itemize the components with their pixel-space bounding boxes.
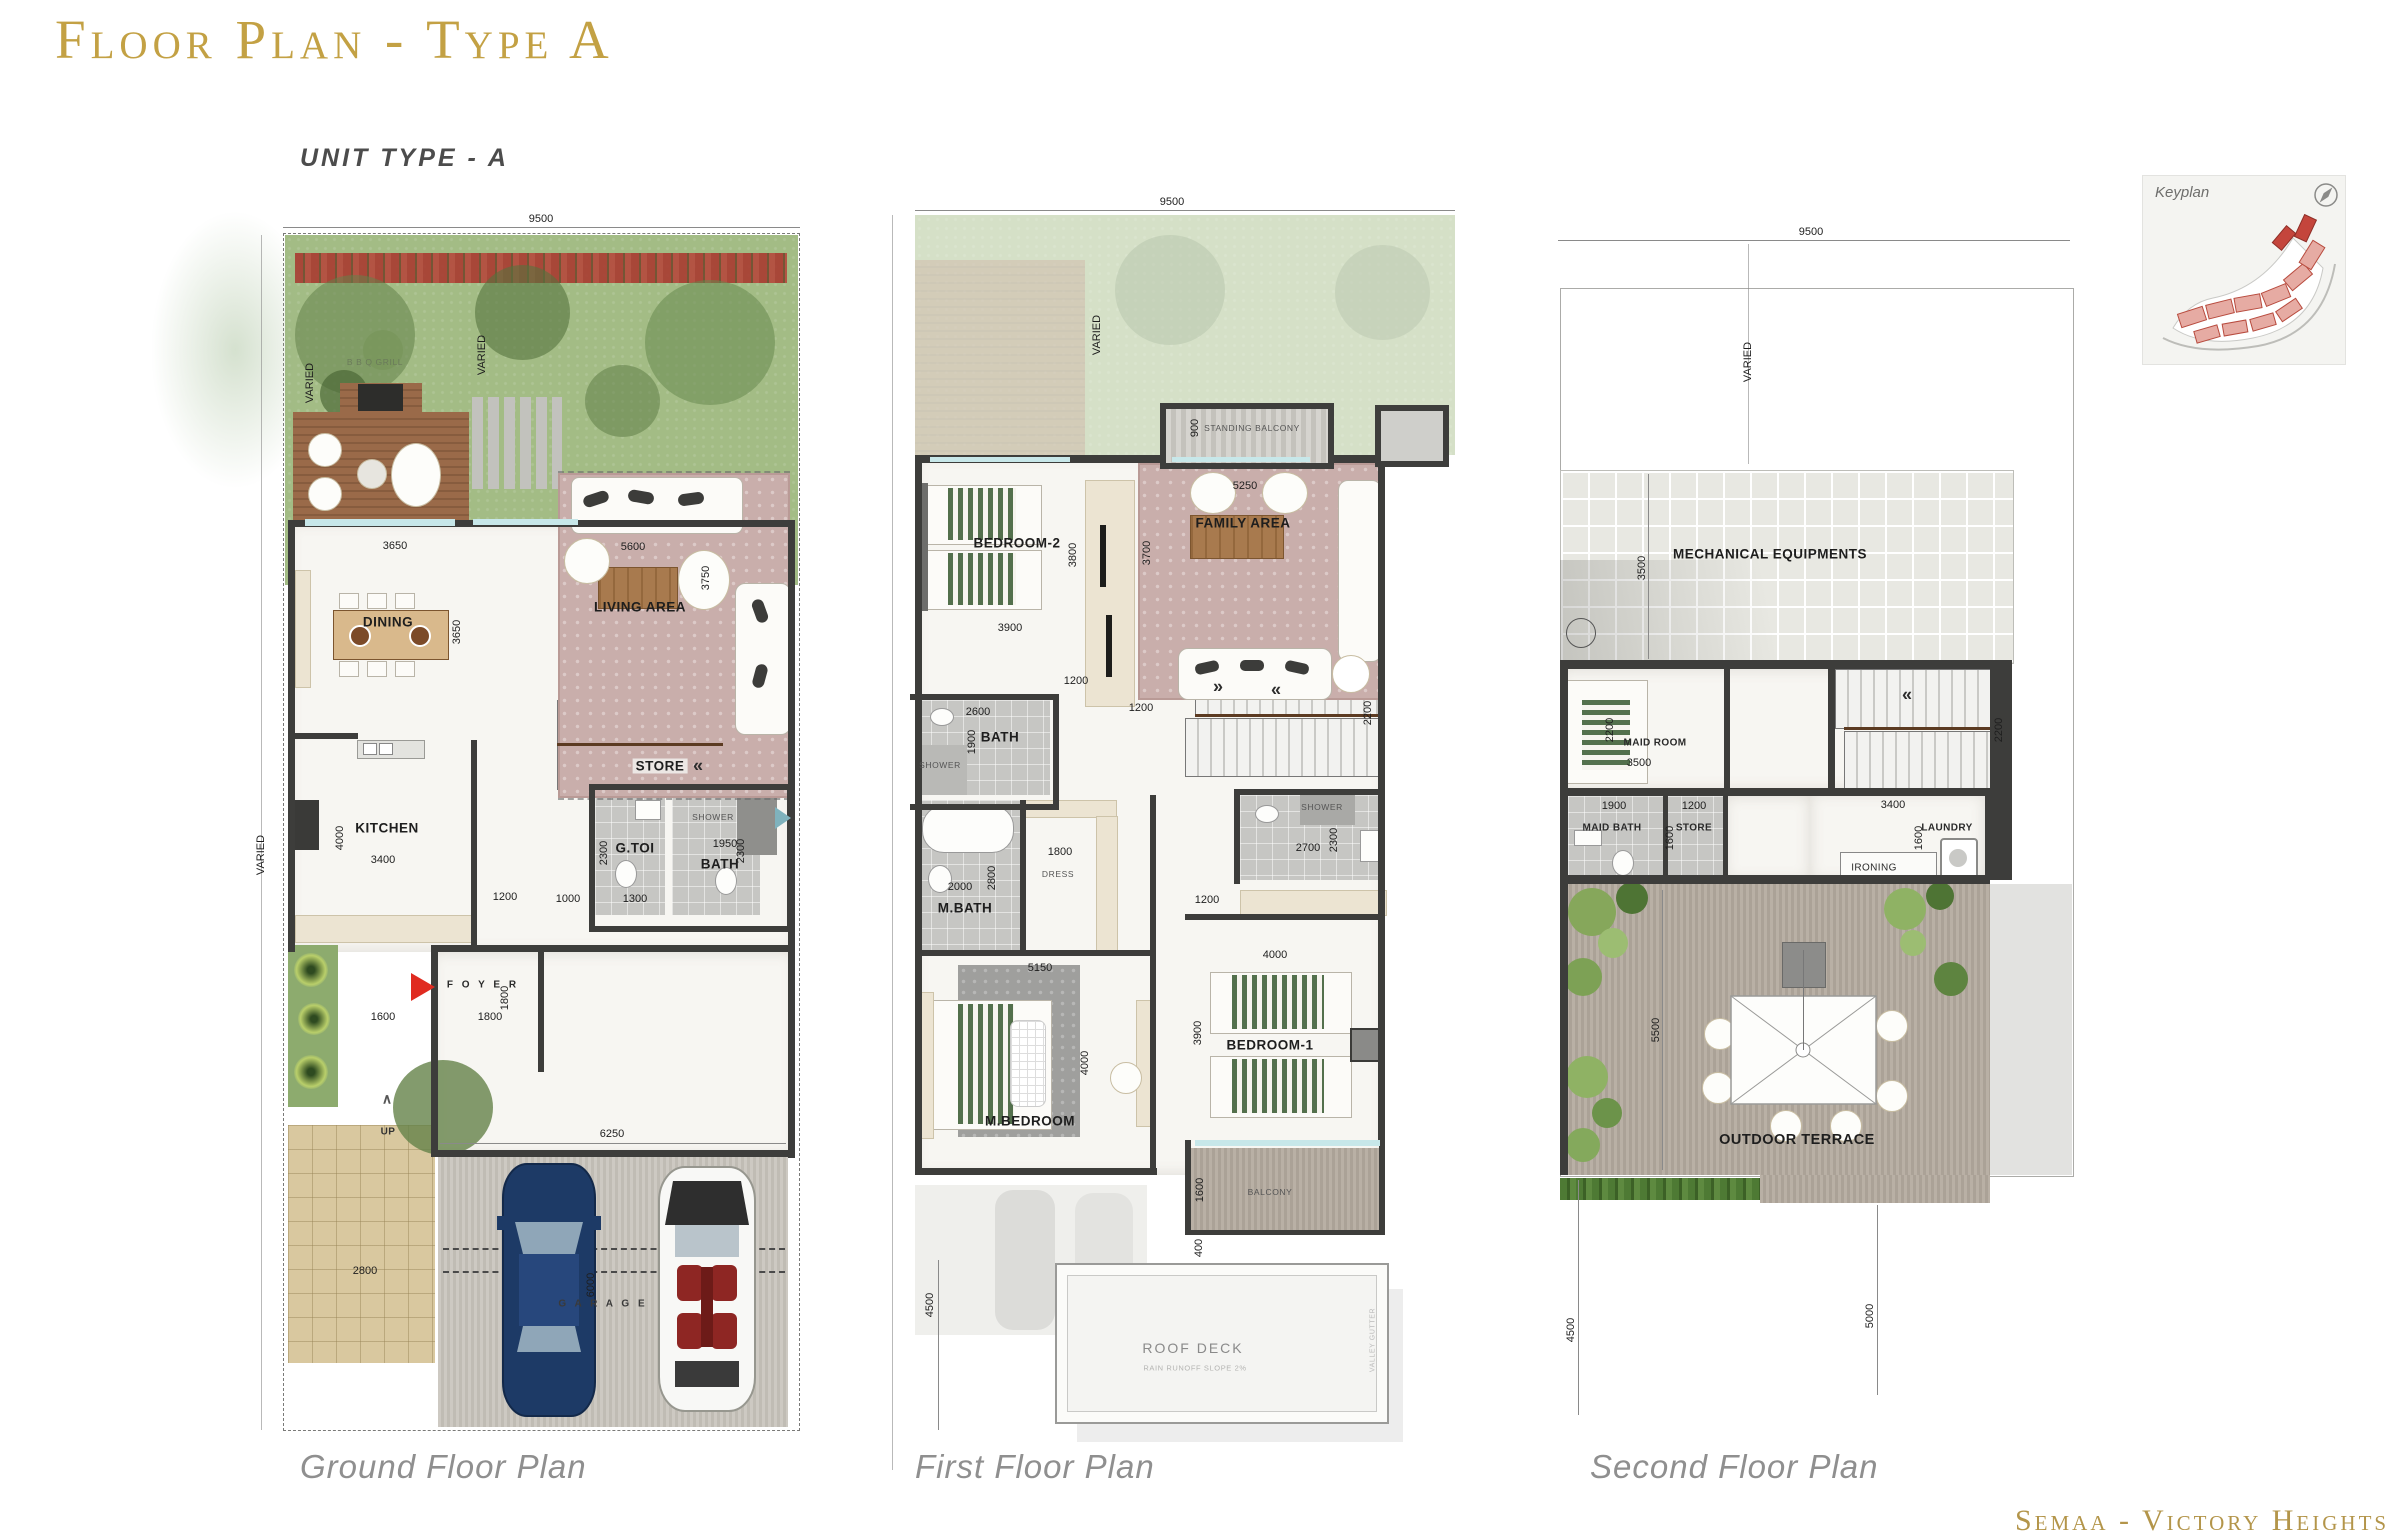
decorative-shape — [675, 1225, 739, 1257]
dim-garden-varied: VARIED — [304, 363, 316, 403]
deck-chair — [308, 477, 342, 511]
dim-side: 4500 — [924, 1293, 936, 1317]
terrace-chair — [1876, 1080, 1908, 1112]
decorative-shape — [517, 1326, 581, 1352]
terrace-label: OUTDOOR TERRACE — [1719, 1132, 1875, 1148]
dim-living-w: 5600 — [621, 541, 645, 553]
dim-line — [283, 227, 800, 228]
laundry-label: LAUNDRY — [1921, 823, 1972, 834]
garage-label: G A R A G E — [558, 1299, 647, 1310]
plant — [1616, 882, 1648, 914]
up-chevron-icon: ∧ — [382, 1091, 392, 1108]
unit-type-label: UNIT TYPE - A — [300, 144, 509, 173]
armchair — [564, 538, 610, 584]
tv-panel — [1100, 525, 1106, 587]
wall-outline — [589, 784, 793, 932]
bed-blanket — [948, 553, 1016, 605]
dim-stair-h: 2200 — [1993, 718, 2005, 742]
dim-sh-w: 2700 — [1296, 842, 1320, 854]
dim-varied-left: VARIED — [255, 835, 267, 875]
up-label: UP — [381, 1127, 396, 1138]
dim-line — [1648, 474, 1649, 659]
ground-floor-plan: 9500 VARIED VARIED VARIED B B Q GRILL 56… — [283, 215, 800, 1447]
plant — [1598, 928, 1628, 958]
dim-line — [892, 215, 893, 1470]
decorative-shape — [2173, 238, 2323, 341]
dining-chair — [339, 593, 359, 609]
shower-label: SHOWER — [919, 760, 961, 770]
decorative-shape — [1949, 849, 1967, 867]
bedroom2-label: BEDROOM-2 — [973, 536, 1060, 551]
terrace-chair — [1876, 1010, 1908, 1042]
mbedroom-label: M.BEDROOM — [985, 1114, 1075, 1129]
shadow — [1560, 560, 1880, 662]
decorative-shape — [711, 1265, 737, 1301]
rug-fringe — [558, 471, 790, 473]
courtyard-tree — [393, 1060, 493, 1155]
dim-family-h: 3700 — [1141, 541, 1153, 565]
deck-below — [915, 260, 1085, 455]
gtoi-label: G.TOI — [615, 841, 654, 856]
fan-chair — [1190, 472, 1236, 514]
wall — [1724, 669, 1730, 790]
dim-drive-w: 2800 — [353, 1265, 377, 1277]
stair-rail — [557, 743, 723, 746]
dim-sh-h: 2300 — [1328, 828, 1340, 852]
wardrobe-dark — [1350, 1028, 1380, 1062]
terrace-ext — [1760, 1175, 1990, 1203]
dim-terrace-h: 5500 — [1650, 1018, 1662, 1042]
dim-lot-width: 9500 — [1799, 226, 1823, 238]
dim-living-h: 3750 — [700, 566, 712, 590]
ironing-label: IRONING — [1851, 863, 1897, 874]
dim-balc-h: 1600 — [1194, 1178, 1206, 1202]
decorative-shape — [497, 1216, 505, 1230]
staircase — [1835, 669, 1992, 729]
wall — [1723, 796, 1728, 880]
standing-balcony-label: STANDING BALCONY — [1204, 423, 1300, 433]
staircase — [1844, 731, 1992, 792]
dim-garage-w: 6250 — [600, 1128, 624, 1140]
decorative-shape — [665, 1181, 749, 1225]
dim-line — [915, 210, 1455, 211]
store-label: STORE — [1676, 823, 1712, 834]
wall — [1185, 1230, 1385, 1235]
tree — [1115, 235, 1225, 345]
dim-line — [938, 1260, 939, 1430]
deck-chair — [308, 433, 342, 467]
door-marker — [775, 807, 791, 829]
dim-side-a: 4500 — [1565, 1318, 1577, 1342]
wall — [1020, 800, 1026, 950]
dim-varied: VARIED — [1742, 342, 1754, 382]
maid-label: MAID ROOM — [1623, 738, 1686, 749]
tree — [645, 280, 775, 405]
mech-label: MECHANICAL EQUIPMENTS — [1673, 547, 1867, 562]
dim-foyer-w: 1800 — [478, 1011, 502, 1023]
deck-lounge — [391, 443, 441, 507]
chaise — [1338, 480, 1382, 662]
deck-table — [357, 459, 387, 489]
second-caption: Second Floor Plan — [1590, 1448, 1879, 1486]
bedroom1-label: BEDROOM-1 — [1226, 1038, 1313, 1053]
window — [1195, 1140, 1380, 1146]
dim-hall-b: 1000 — [556, 893, 580, 905]
decorative-shape — [677, 1265, 703, 1301]
wall — [915, 950, 1155, 956]
kitchen-sink — [363, 743, 377, 755]
dim-family-w: 5250 — [1233, 480, 1257, 492]
kitchen-sink — [379, 743, 393, 755]
grill-table — [1782, 942, 1826, 988]
decorative-shape — [701, 1267, 713, 1347]
bed-blanket — [1232, 975, 1324, 1029]
dim-maid-w: 3500 — [1627, 757, 1651, 769]
keyplan: Keyplan — [2143, 176, 2345, 364]
stair-rail — [1195, 714, 1383, 717]
dim-gtoi-w: 1300 — [623, 893, 647, 905]
plant — [1592, 1098, 1622, 1128]
wall — [1560, 660, 2012, 669]
dim-bath-h: 2300 — [735, 839, 747, 863]
bed-blanket — [1232, 1059, 1324, 1113]
dim-maidbath-w: 1900 — [1602, 800, 1626, 812]
dim-bath-w: 2600 — [966, 706, 990, 718]
wall — [1234, 789, 1240, 884]
kitchen-label: KITCHEN — [355, 821, 419, 836]
floorplan-sheet: { "page": { "title": "Floor Plan - Type … — [0, 0, 2400, 1530]
wall — [1150, 795, 1156, 1175]
dim-hall-c: 1200 — [1195, 894, 1219, 906]
second-floor-plan: 9500 VARIED MECHANICAL EQUIPMENTS 3500 M… — [1552, 230, 2097, 1445]
dim-bath-h: 1900 — [966, 730, 978, 754]
decorative-shape — [711, 1313, 737, 1349]
pergola-post — [1803, 950, 1804, 1050]
dim-hall-b: 1200 — [1129, 702, 1153, 714]
store-label: STORE — [633, 759, 688, 774]
page-title: Floor Plan - Type A — [55, 8, 614, 71]
wall — [538, 952, 544, 1072]
toilet — [1612, 850, 1634, 876]
washbasin — [1360, 830, 1380, 862]
plant — [1566, 1128, 1600, 1162]
tv-panel — [1106, 615, 1112, 677]
dim-maid-h: 2200 — [1604, 718, 1616, 742]
wall — [1379, 1140, 1385, 1235]
dim-line — [440, 1143, 786, 1144]
dim-line — [1877, 1205, 1878, 1395]
dim-line — [261, 235, 262, 1430]
wall — [1560, 660, 1568, 1175]
dim-dress-w: 1800 — [1048, 846, 1072, 858]
dim-store-h: 1600 — [1664, 826, 1676, 850]
decorative-shape — [515, 1222, 583, 1254]
wall — [1234, 789, 1385, 795]
side-block — [1375, 405, 1449, 467]
chair-outline — [1566, 618, 1596, 648]
entry-arrow-icon — [411, 973, 435, 1001]
dining-chair — [339, 661, 359, 677]
dining-chair — [367, 661, 387, 677]
dim-varied: VARIED — [1091, 315, 1103, 355]
dim-mbath-h: 2800 — [986, 866, 998, 890]
stair-direction-icon: » — [1213, 677, 1223, 698]
wall — [1378, 455, 1385, 1145]
wall — [471, 740, 477, 952]
wall — [915, 455, 922, 1175]
desk-chair — [1110, 1062, 1142, 1094]
dim-bed2-w: 3900 — [998, 622, 1022, 634]
window — [305, 519, 455, 526]
dim-mech-h: 3500 — [1636, 556, 1648, 580]
dining-chair — [395, 593, 415, 609]
dim-store-w: 1200 — [1682, 800, 1706, 812]
fan-chair — [1262, 472, 1308, 514]
dim-bed1-h: 3900 — [1192, 1021, 1204, 1045]
flat-roof — [1990, 884, 2072, 1175]
dim-court-w: 1600 — [371, 1011, 395, 1023]
fridge — [293, 800, 319, 850]
dim-line — [1662, 890, 1663, 1170]
plant — [298, 1003, 330, 1035]
roofdeck-label: ROOF DECK — [1142, 1340, 1243, 1356]
decorative-shape — [2294, 215, 2316, 242]
shower-label: SHOWER — [692, 812, 734, 822]
living-label: LIVING AREA — [594, 600, 686, 615]
dim-kitchen-w: 3400 — [371, 854, 395, 866]
plant — [294, 1055, 328, 1089]
wall — [915, 1168, 1157, 1175]
dim-garage-h: 6000 — [585, 1273, 597, 1297]
plant — [1934, 962, 1968, 996]
dim-dining-w: 3650 — [451, 620, 463, 644]
dim-mbath-w: 2000 — [948, 881, 972, 893]
first-caption: First Floor Plan — [915, 1448, 1155, 1486]
dim-hall-a: 1200 — [493, 891, 517, 903]
dim-gtoi-h: 2300 — [598, 841, 610, 865]
wall — [1185, 1140, 1191, 1235]
roofdeck-note: RAIN RUNOFF SLOPE 2% — [1143, 1364, 1246, 1373]
plant — [1564, 958, 1602, 996]
tree — [585, 365, 660, 437]
dim-deck-w: 3650 — [383, 540, 407, 552]
bbq-grill-label: B B Q GRILL — [347, 357, 403, 367]
brand-watermark: Semaa - Victory Heights — [2015, 1504, 2389, 1538]
sofa-cushion — [1240, 660, 1264, 671]
keyplan-site-map — [2143, 198, 2345, 358]
dining-label: DINING — [363, 615, 413, 630]
wall — [431, 1150, 795, 1157]
dim-bath-w: 1950 — [713, 838, 737, 850]
wardrobe — [1240, 890, 1387, 916]
bed-blanket — [958, 1004, 1014, 1124]
wall — [1828, 669, 1835, 790]
dim-line — [1558, 240, 2070, 241]
throw-blanket — [1010, 1020, 1046, 1107]
first-floor-plan: 9500 VARIED STANDING BALCONY 900 BEDROOM… — [910, 200, 1458, 1485]
headboard — [920, 992, 934, 1139]
stair-rail — [1844, 727, 1990, 730]
maidbath-label: MAID BATH — [1583, 823, 1642, 834]
plant — [294, 953, 328, 987]
dim-garden-varied: VARIED — [476, 335, 488, 375]
wall — [1985, 788, 2012, 880]
window — [473, 519, 578, 525]
dim-lot-width: 9500 — [1160, 196, 1184, 208]
dim-hall-a: 1200 — [1064, 675, 1088, 687]
kitchen-cabinets — [295, 915, 473, 943]
wardrobe — [1096, 816, 1118, 952]
wall — [1560, 788, 2012, 796]
ground-caption: Ground Floor Plan — [300, 1448, 587, 1486]
shower-label: SHOWER — [1301, 802, 1343, 812]
mbath-label: M.BATH — [938, 901, 993, 916]
keyplan-label: Keyplan — [2155, 184, 2209, 201]
window — [930, 457, 1070, 462]
balcony-label: BALCONY — [1248, 1187, 1293, 1197]
dim-bed1-top: 4000 — [1263, 949, 1287, 961]
bath-label: BATH — [981, 730, 1020, 745]
dim-bed2-h: 3800 — [1067, 543, 1079, 567]
bbq-grill — [358, 384, 403, 411]
dim-lot-width: 9500 — [529, 213, 553, 225]
dining-chair — [367, 593, 387, 609]
dim-mbed-h: 4000 — [1079, 1051, 1091, 1075]
round-table — [1332, 655, 1370, 693]
bed-blanket — [948, 488, 1016, 540]
console-cabinet — [295, 570, 311, 688]
dim-stair-h: 2200 — [1362, 701, 1374, 725]
decorative-shape — [593, 1216, 601, 1230]
dim-foyer-h: 1800 — [499, 986, 511, 1010]
bath-label: BATH — [701, 857, 740, 872]
staircase-down — [1185, 718, 1385, 777]
dim-kitchen-h: 4000 — [334, 826, 346, 850]
dim-laundry-h: 1600 — [1913, 826, 1925, 850]
decorative-shape — [677, 1313, 703, 1349]
dim-balc-off: 400 — [1193, 1239, 1205, 1257]
dim-mbed-w: 5150 — [1028, 962, 1052, 974]
decorative-shape — [519, 1254, 579, 1326]
family-label: FAMILY AREA — [1195, 516, 1290, 531]
plant — [1926, 882, 1954, 910]
dim-stb: 900 — [1189, 419, 1201, 437]
toilet — [1255, 805, 1279, 823]
hall — [1725, 796, 1810, 880]
tree — [1335, 245, 1430, 340]
stair-direction-icon: « — [1902, 685, 1912, 706]
stair-direction-icon: « — [1271, 680, 1281, 701]
dress-label: DRESS — [1042, 869, 1074, 879]
plant — [1884, 888, 1926, 930]
valley-gutter-label: VALLEY GUTTER — [1370, 1308, 1377, 1372]
plant — [1566, 1056, 1608, 1098]
dining-chair — [395, 661, 415, 677]
hedge — [1560, 1178, 1760, 1200]
decorative-shape — [995, 1190, 1055, 1330]
tree — [475, 265, 570, 360]
wall — [288, 733, 358, 739]
dim-laundry-w: 3400 — [1881, 799, 1905, 811]
car-convertible — [651, 1165, 763, 1415]
wall — [1185, 914, 1385, 920]
plant — [1900, 930, 1926, 956]
wall — [431, 945, 795, 952]
window — [1172, 457, 1310, 462]
dim-side-b: 5000 — [1864, 1304, 1876, 1328]
decorative-shape — [675, 1361, 739, 1387]
stair-direction-icon: « — [693, 756, 703, 777]
dim-line — [1578, 1180, 1579, 1415]
bathtub — [922, 805, 1014, 853]
wall — [1560, 875, 1990, 884]
